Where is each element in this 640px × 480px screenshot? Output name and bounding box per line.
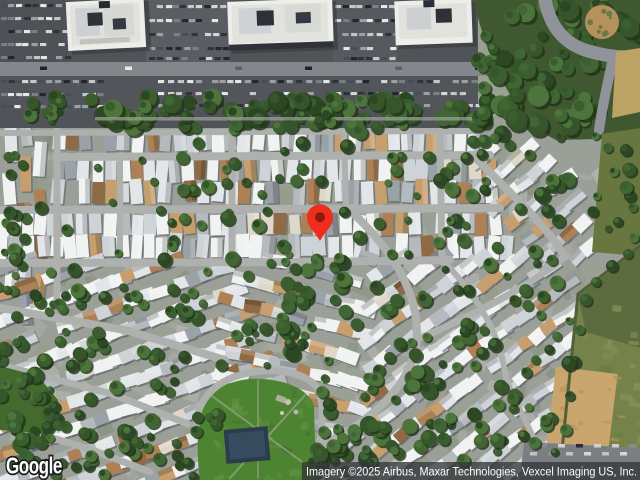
svg-text:Imagery ©2025 Airbus, Maxar Te: Imagery ©2025 Airbus, Maxar Technologies…: [306, 465, 637, 479]
svg-text:Google: Google: [6, 454, 62, 479]
